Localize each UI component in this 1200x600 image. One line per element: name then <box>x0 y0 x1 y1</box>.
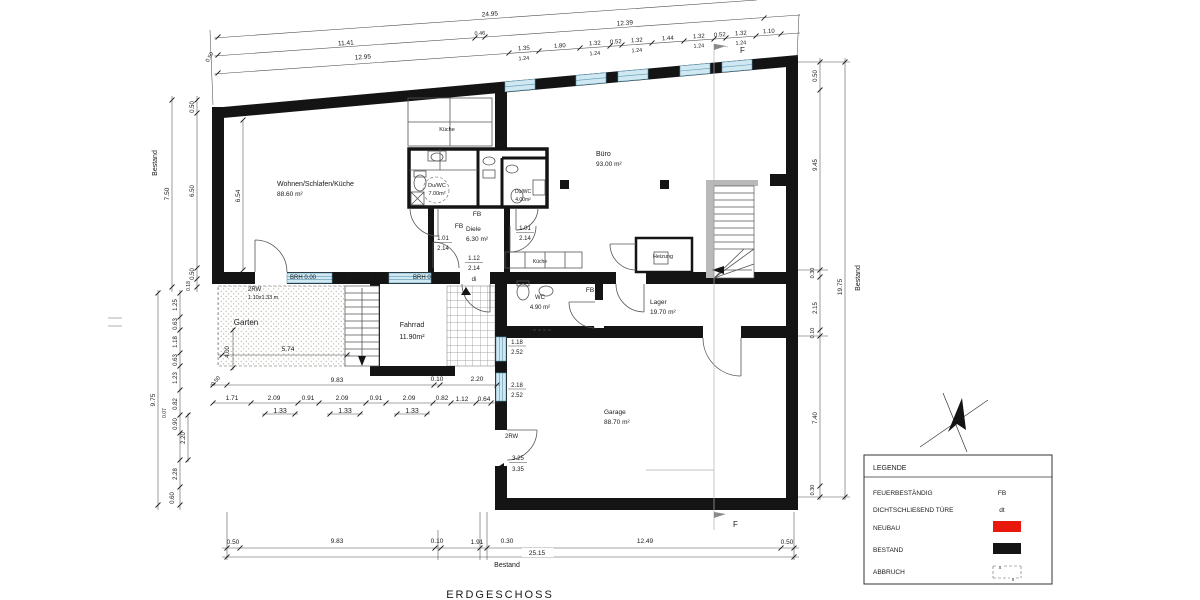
dim-sublabel: 1.24 <box>589 51 600 58</box>
dim-label: 2.09 <box>336 395 349 402</box>
dim-label: 9.75 <box>150 393 157 406</box>
legend-fb-symbol: FB <box>998 490 1006 497</box>
door-size: 1.01 <box>519 226 531 232</box>
dim-label: 24.95 <box>482 10 499 18</box>
legend-row-label: NEUBAU <box>873 525 900 532</box>
page-title: ERDGESCHOSS <box>446 589 554 600</box>
dim-label: 0.82 <box>173 398 179 410</box>
dim-label: 0.50 <box>205 51 216 63</box>
room-area: 11.90m² <box>399 334 425 341</box>
door-size: 1.01 <box>437 236 449 242</box>
dim-label: 0.50 <box>190 268 196 280</box>
room-label: Heizung <box>653 254 673 260</box>
dim-label: 0.50 <box>227 539 240 546</box>
dim-label: 0.52 <box>610 39 623 46</box>
dim-sublabel: 1.24 <box>518 56 529 63</box>
room-area: 4.00m² <box>515 197 531 203</box>
room-label: Küche <box>439 127 455 133</box>
fold-marks <box>108 318 122 326</box>
dim-label: 0.10 <box>431 538 444 545</box>
dim-label: 0.82 <box>436 395 449 402</box>
column <box>660 180 669 189</box>
north-arrow-icon <box>920 393 988 452</box>
dim-label: 19.75 <box>837 278 844 295</box>
dim-label: 0.90 <box>173 418 179 430</box>
dim-label: 6.54 <box>235 189 242 202</box>
dim-label: 0.30 <box>810 485 816 496</box>
dim-label: 0.63 <box>173 354 179 366</box>
entry-tile-floor <box>447 286 495 366</box>
room-area: 88.70 m² <box>604 419 630 426</box>
dim-label: 1.71 <box>226 395 239 402</box>
dim-label: 2.09 <box>268 395 281 402</box>
dim-label: 0.50 <box>781 539 794 546</box>
room-label: Wohnen/Schlafen/Küche <box>277 181 354 188</box>
room-label: Garten <box>234 318 258 327</box>
dim-label: 0.64 <box>478 396 491 403</box>
door-size: 2.14 <box>519 236 531 242</box>
dim-label: 1.33 <box>405 408 419 415</box>
fb-tag: FB <box>473 211 481 218</box>
dim-label: 1.10 <box>763 29 776 36</box>
dim-label: 0.30 <box>501 538 514 545</box>
dim-label: 0.50 <box>813 70 819 82</box>
legend-row-label: FEUERBESTÄNDIG <box>873 489 933 497</box>
window-tag: 2RW <box>248 287 262 293</box>
room-label: Büro <box>596 151 611 158</box>
room-label: Du/WC <box>515 189 532 195</box>
dim-label: 0.52 <box>714 32 727 39</box>
garage-door-size: 3.35 <box>512 467 524 473</box>
room-area: 93.00 m² <box>596 161 622 168</box>
dim-label: 0.50 <box>190 101 196 113</box>
room-label: Lager <box>650 299 667 306</box>
legend-header: LEGENDE <box>873 465 907 472</box>
floor-plan-drawing: x x 24.95 11.41 0.46 12.39 12.95 1.35 1.… <box>0 0 1200 600</box>
fb-tag: FB <box>499 141 507 148</box>
dim-label: 6.50 <box>190 185 196 197</box>
fb-tag: FB <box>586 287 594 294</box>
fb-tag: FB <box>455 223 463 230</box>
dim-label: 1.18 <box>173 336 179 348</box>
room-label: WC <box>535 295 546 301</box>
room-label: Diele <box>466 226 481 233</box>
dim-label: 4.00 <box>225 346 231 358</box>
right-dimension-labels: 0.50 9.45 0.30 2.15 0.10 7.40 0.30 19.75… <box>810 70 862 496</box>
window-tag: 1.10x1.33 m <box>248 295 279 301</box>
dim-label: 12.39 <box>617 19 634 27</box>
dim-label: 2.20 <box>471 376 484 383</box>
room-area: 7.00m² <box>428 191 445 197</box>
dim-label: 0.10 <box>810 328 816 339</box>
dim-label: 1.32 <box>735 31 748 38</box>
dim-label: 0.91 <box>302 395 315 402</box>
dim-label: 9.83 <box>331 538 344 545</box>
column <box>560 180 569 189</box>
dim-label: 2.15 <box>813 302 819 314</box>
dim-label: 5.74 <box>282 346 295 353</box>
dim-label: 0.60 <box>170 492 176 504</box>
legend-row-label: DICHTSCHLIEßEND TÜRE <box>873 506 954 514</box>
dim-label: 2.20 <box>181 432 187 444</box>
dim-label: 1.25 <box>173 299 179 311</box>
dim-label: 0.07 <box>162 408 168 418</box>
garage-door-size: 3.25 <box>512 456 524 462</box>
dim-sublabel: 1.24 <box>693 43 704 50</box>
dim-label: 9.83 <box>331 377 344 384</box>
dim-label: 11.41 <box>338 39 355 47</box>
dim-label: 1.44 <box>662 36 675 43</box>
window-size: 2.18 <box>511 383 523 389</box>
floor-plan-sheet: x x 24.95 11.41 0.46 12.39 12.95 1.35 1.… <box>0 0 1200 600</box>
dim-label: 12.49 <box>637 538 654 545</box>
door-size: 1.12 <box>468 256 480 262</box>
room-area: 88.60 m² <box>277 191 303 198</box>
dim-label: 1.12 <box>456 396 469 403</box>
dim-sublabel: 1.24 <box>631 48 642 55</box>
dim-label: 1.32 <box>693 34 706 41</box>
door-size: 2.14 <box>437 246 449 252</box>
dim-label: 2.28 <box>173 468 179 480</box>
legend: LEGENDE FEUERBESTÄNDIG DICHTSCHLIEßEND T… <box>864 455 1052 584</box>
dim-label: 0.10 <box>431 376 444 383</box>
dim-label: 1.91 <box>471 539 484 546</box>
dim-label: 1.80 <box>554 43 567 50</box>
dim-label: 7.50 <box>164 187 171 200</box>
bestand-label: Bestand <box>494 562 520 569</box>
legend-bestand-swatch <box>993 543 1021 554</box>
room-label: Du/WC <box>428 183 446 189</box>
dim-label: 1.33 <box>273 408 287 415</box>
dim-label: 2.09 <box>403 395 416 402</box>
window-size: 2.52 <box>511 350 523 356</box>
dim-label: 1.33 <box>338 408 352 415</box>
kitchen-counter-top <box>408 98 492 146</box>
legend-row-label: ABBRUCH <box>873 569 905 576</box>
dim-label: 0.46 <box>474 31 485 38</box>
dim-label: 0.63 <box>173 318 179 330</box>
dim-label: 1.32 <box>631 38 644 45</box>
room-area: 6.30 m² <box>466 236 489 243</box>
room-label: Küche <box>533 259 547 265</box>
room-area: 19.70 m² <box>650 309 676 316</box>
room-label: Garage <box>604 409 626 416</box>
brh-label: BRH 0.90 <box>413 275 440 281</box>
room-label: Fahrrad <box>400 322 425 329</box>
bottom-dimension-labels: 0.50 9.83 0.10 1.91 0.30 12.49 0.50 25.1… <box>227 538 794 569</box>
room-area: 4.90 m² <box>530 305 550 311</box>
dim-label: 0.50 <box>210 375 221 387</box>
section-letter: F <box>733 520 738 529</box>
dim-label: 1.23 <box>173 372 179 384</box>
brh-label: BRH 0.90 <box>347 275 374 281</box>
legend-neubau-swatch <box>993 521 1021 532</box>
dim-label: 7.40 <box>813 412 819 424</box>
section-letter: F <box>740 46 745 55</box>
exterior-stairs <box>345 286 379 366</box>
door-size: 2.14 <box>468 266 480 272</box>
dim-label: 0.18 <box>186 281 192 291</box>
dim-label: 25.15 <box>529 550 546 557</box>
bestand-label: Bestand <box>152 150 159 176</box>
brh-label: BRH 0.00 <box>290 275 317 281</box>
dim-label: 0.91 <box>370 395 383 402</box>
bestand-label: Bestand <box>855 265 862 291</box>
dim-label: 12.95 <box>355 53 372 61</box>
door-tag-di: di <box>472 277 477 283</box>
dim-label: 1.35 <box>518 46 531 53</box>
window-tag: 2RW <box>505 434 519 440</box>
window-size: 2.52 <box>511 393 523 399</box>
section-line <box>646 44 728 530</box>
legend-row-label: BESTAND <box>873 547 904 554</box>
dim-label: 1.32 <box>589 41 602 48</box>
dim-label: 9.45 <box>813 159 819 171</box>
dim-label: 0.30 <box>810 268 816 279</box>
window-size: 1.18 <box>511 340 523 346</box>
legend-dt-symbol: dt <box>999 507 1005 514</box>
